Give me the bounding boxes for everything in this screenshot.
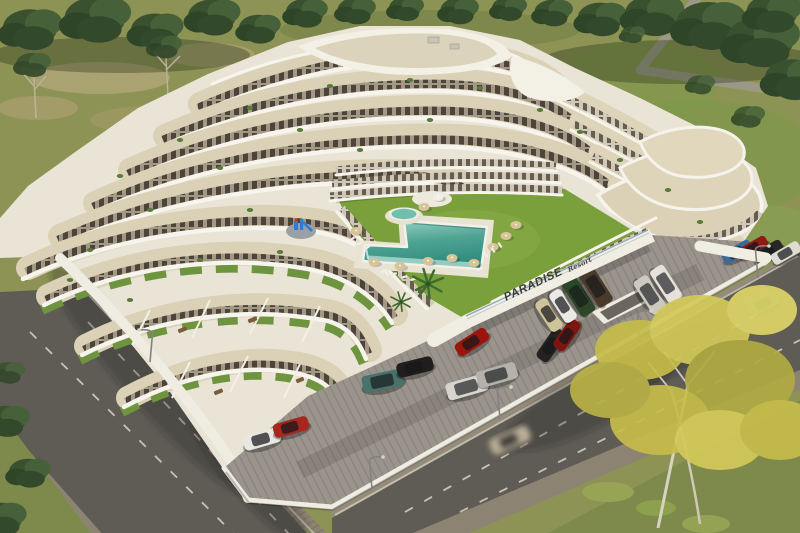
rooftop-unit [450,44,459,49]
round-patio [412,191,452,207]
scene-svg: PARADISE Resort [0,0,800,533]
kids-pool [385,208,423,225]
render-canvas: PARADISE Resort [0,0,800,533]
rooftop-unit [428,37,439,43]
